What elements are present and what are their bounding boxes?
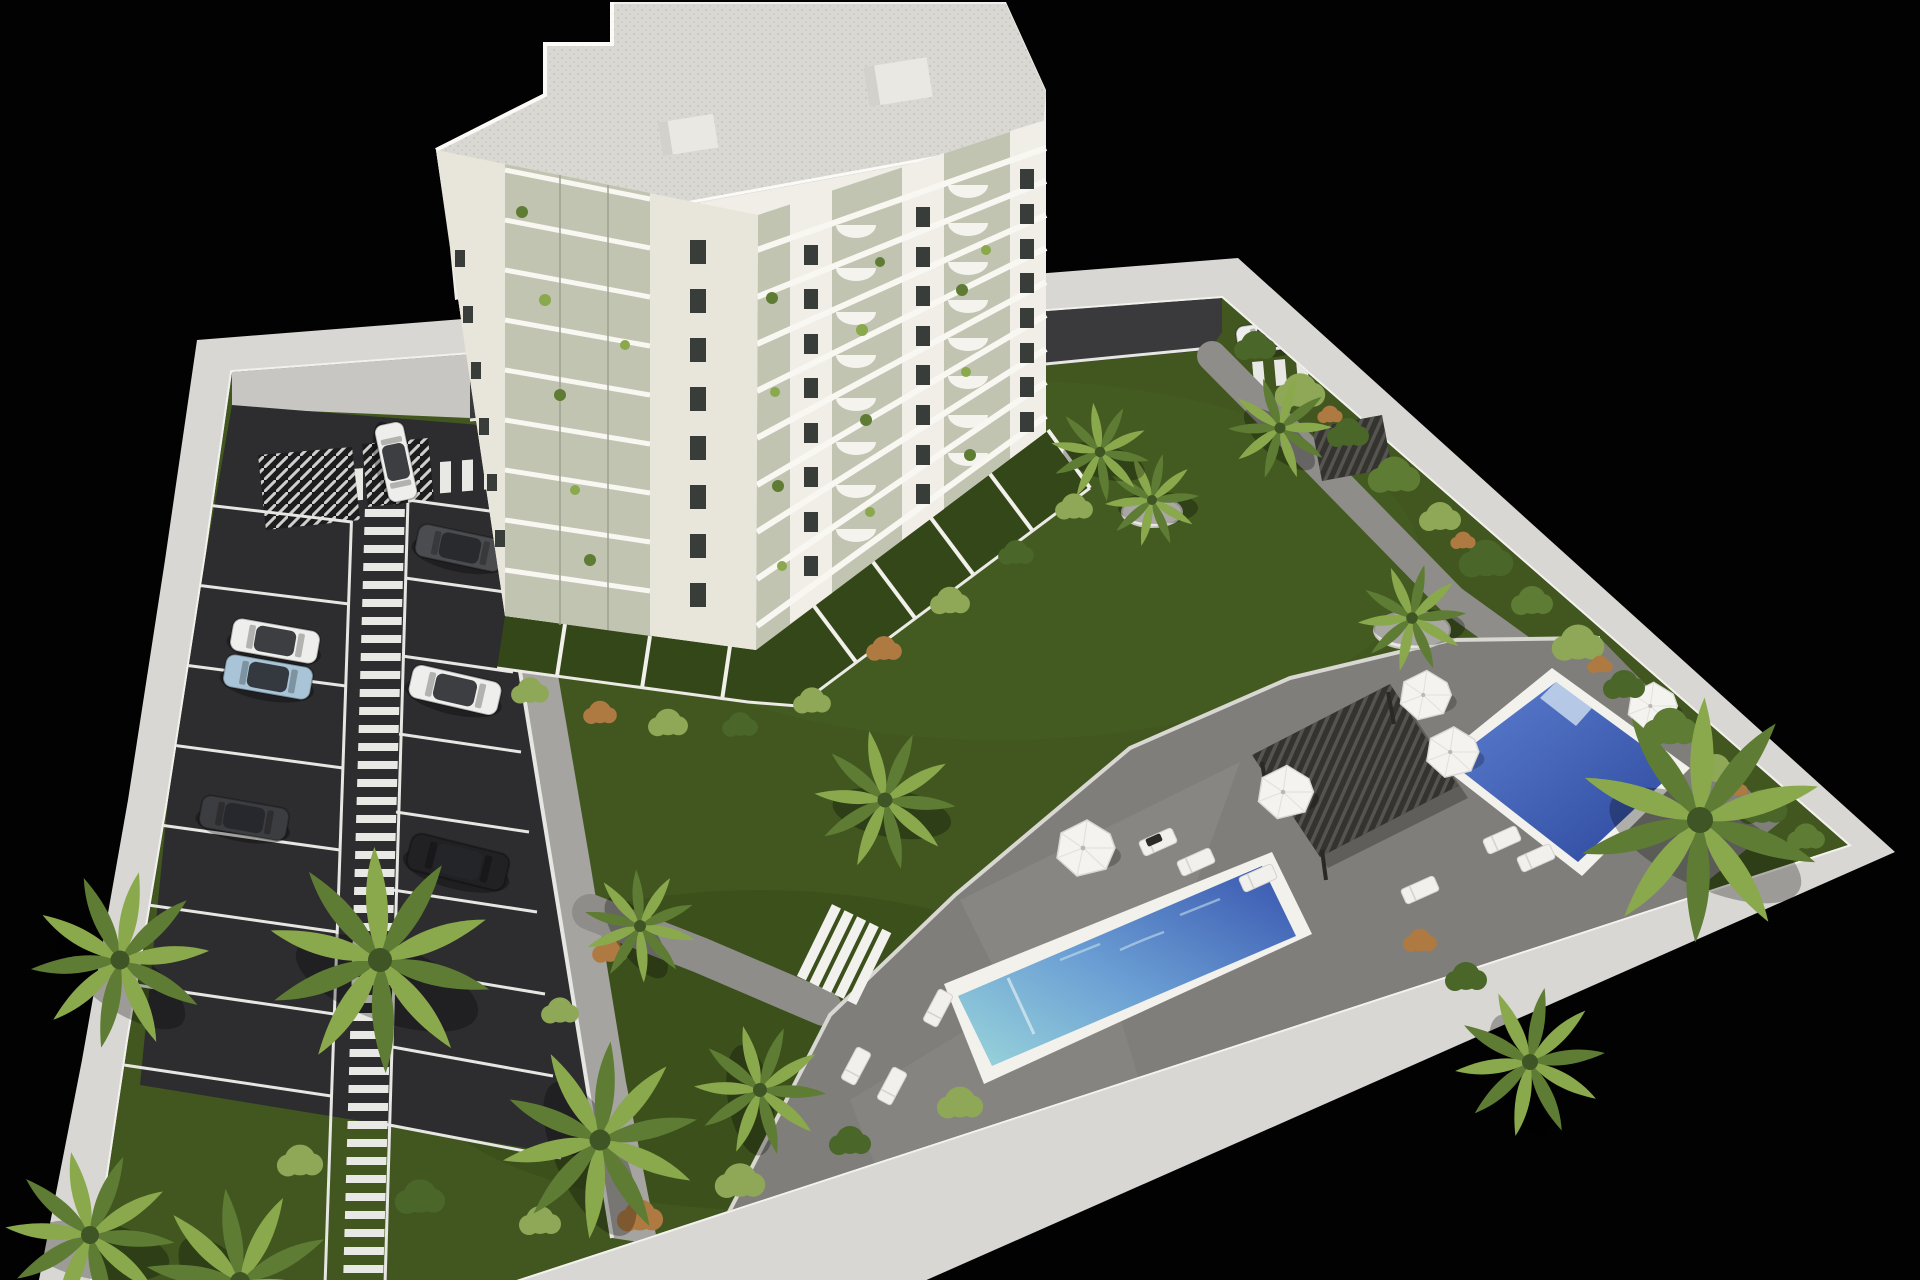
render-canvas: Aerial 3D architectural rendering of a w…	[0, 0, 1920, 1280]
architectural-render: Aerial 3D architectural rendering of a w…	[0, 0, 1920, 1280]
